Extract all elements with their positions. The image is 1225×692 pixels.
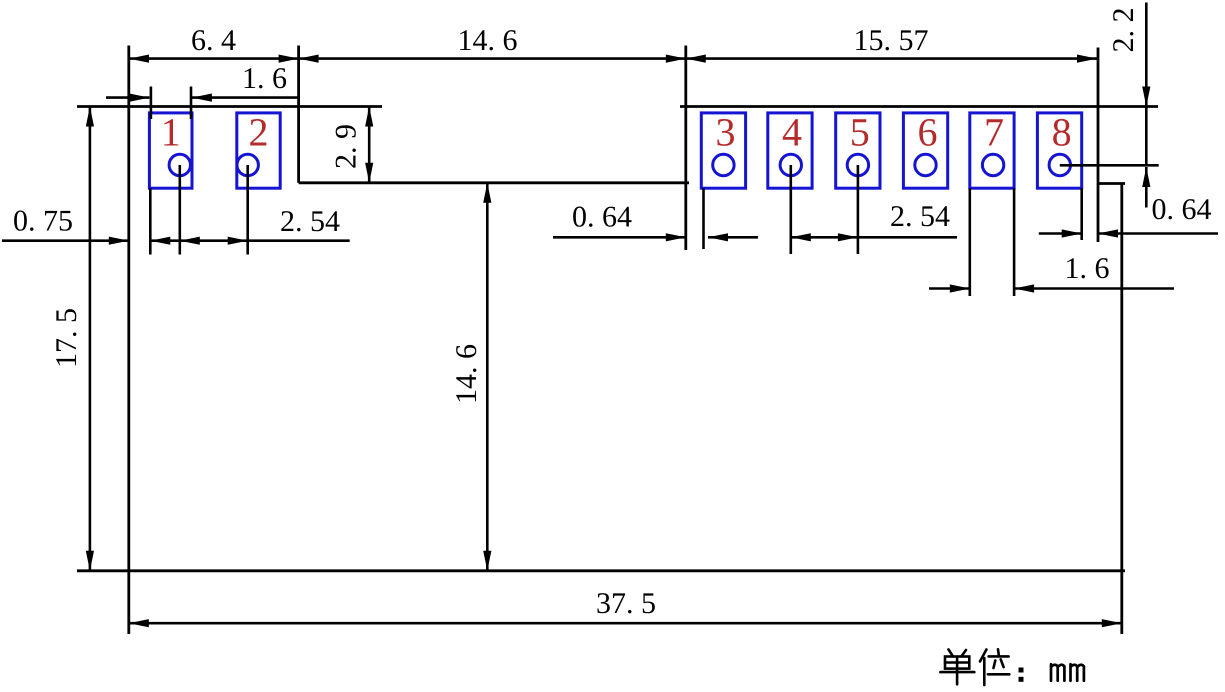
svg-text:6. 4: 6. 4 <box>191 24 236 57</box>
svg-text:3: 3 <box>716 110 736 155</box>
svg-text:37. 5: 37. 5 <box>596 587 656 620</box>
svg-text:6: 6 <box>918 110 938 155</box>
svg-text:4: 4 <box>782 110 802 155</box>
svg-text:1. 6: 1. 6 <box>1065 252 1110 285</box>
svg-text:1. 6: 1. 6 <box>242 62 287 95</box>
svg-text:8: 8 <box>1052 110 1072 155</box>
svg-text:0. 64: 0. 64 <box>572 201 632 234</box>
svg-text:17. 5: 17. 5 <box>50 308 83 368</box>
svg-text:7: 7 <box>984 110 1004 155</box>
svg-text:1: 1 <box>161 110 181 155</box>
svg-text:2. 9: 2. 9 <box>330 124 363 169</box>
svg-text:2: 2 <box>249 110 269 155</box>
svg-text:14. 6: 14. 6 <box>450 344 483 404</box>
svg-text:2. 54: 2. 54 <box>280 205 340 238</box>
svg-text:15. 57: 15. 57 <box>854 24 929 57</box>
svg-text:0. 75: 0. 75 <box>13 205 73 238</box>
svg-text:2. 54: 2. 54 <box>890 200 950 233</box>
svg-text:5: 5 <box>850 110 870 155</box>
svg-text:2. 2: 2. 2 <box>1107 8 1140 53</box>
svg-text:0. 64: 0. 64 <box>1152 193 1212 226</box>
svg-text:14. 6: 14. 6 <box>458 24 518 57</box>
